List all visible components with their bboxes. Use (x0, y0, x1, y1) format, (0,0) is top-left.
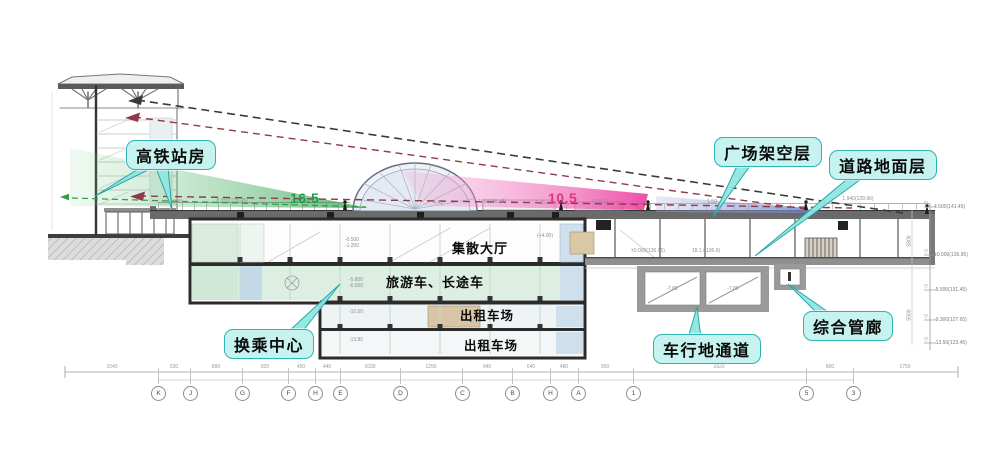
grid-bubble: 5 (799, 386, 814, 401)
grid-bubble: F (281, 386, 296, 401)
dimension-value: 640 (527, 364, 535, 370)
dimension-value: 450 (297, 364, 305, 370)
tiny-annotation: -7.80 (666, 286, 677, 292)
elevation-marker: ▽ (924, 249, 928, 255)
callout-vehicle-underpass: 车行地通道 (653, 334, 761, 364)
tiny-annotation: 4.45 (535, 200, 545, 206)
dimension-value: 890 (212, 364, 220, 370)
grid-tick (633, 368, 634, 384)
annotation-layer: KJGFHEDCBHA15315405308908204504401030125… (0, 0, 995, 468)
tiny-annotation: (+4.00) (537, 233, 553, 239)
grid-bubble: D (393, 386, 408, 401)
tiny-annotation: -7.80 (727, 286, 738, 292)
elevation-marker: ▽ (924, 314, 928, 320)
dimension-value: 820 (261, 364, 269, 370)
grid-bubble: E (333, 386, 348, 401)
grid-bubble: H (308, 386, 323, 401)
elevation-value: 4.500(141.45) (934, 204, 965, 210)
grid-bubble: G (235, 386, 250, 401)
label-concourse-hall: 集散大厅 (452, 238, 508, 257)
tiny-annotation: 4.45 (433, 200, 443, 206)
dimension-value: 1250 (425, 364, 436, 370)
callout-station-building: 高铁站房 (126, 140, 216, 170)
tiny-annotation: -6.500 (349, 283, 363, 289)
vertical-dimension: 5800 (907, 235, 913, 246)
elevation-marker: ▽ (924, 201, 928, 207)
grid-bubble: A (571, 386, 586, 401)
dimension-value: 800 (826, 364, 834, 370)
grid-bubble: K (151, 386, 166, 401)
label-tour-coach-level: 旅游车、长途车 (386, 272, 484, 291)
grid-tick (462, 368, 463, 384)
elevation-value: -9.300(127.65) (934, 317, 967, 323)
grid-tick (806, 368, 807, 384)
vertical-dimension: 5500 (907, 309, 913, 320)
grid-tick (315, 368, 316, 384)
tiny-annotation: 0.45 (173, 199, 183, 205)
grid-bubble: H (543, 386, 558, 401)
grid-tick (288, 368, 289, 384)
dimension-value: 440 (323, 364, 331, 370)
elevation-value: ±0.000(136.95) (934, 252, 968, 258)
label-taxi-level-2: 出租车场 (464, 335, 518, 354)
grid-tick (190, 368, 191, 384)
grid-bubble: B (505, 386, 520, 401)
grid-bubble: J (183, 386, 198, 401)
tiny-annotation: (138.2) (592, 199, 608, 205)
grid-bubble: 1 (626, 386, 641, 401)
grid-tick (400, 368, 401, 384)
dimension-value: 2920 (713, 364, 724, 370)
grid-tick (853, 368, 854, 384)
grid-tick (242, 368, 243, 384)
callout-utility-corridor: 综合管廊 (803, 311, 893, 341)
tiny-annotation: 1.50 (707, 199, 717, 205)
dimension-value: 530 (170, 364, 178, 370)
tiny-annotation: 1.940(139.96) (842, 196, 873, 202)
grid-tick (158, 368, 159, 384)
callout-road-ground-level: 道路地面层 (829, 150, 937, 180)
tiny-annotation: 18.1 /(136.9) (692, 248, 720, 254)
green-sightline-value: 16.5 (290, 190, 319, 206)
dimension-value: 900 (601, 364, 609, 370)
grid-tick (550, 368, 551, 384)
elevation-marker: ▽ (924, 337, 928, 343)
tiny-annotation: 7.92(136.45) (478, 199, 506, 205)
label-taxi-level-1: 出租车场 (460, 305, 514, 324)
elevation-value: -5.500(131.45) (934, 287, 967, 293)
pink-sightline-value: 10.5 (548, 190, 577, 206)
callout-plaza-elevated-level: 广场架空层 (714, 137, 822, 167)
grid-tick (578, 368, 579, 384)
elevation-value: -13.50(123.45) (934, 340, 967, 346)
tiny-annotation: -13.80 (349, 337, 363, 343)
dimension-value: 480 (560, 364, 568, 370)
elevation-marker: ▽ (924, 284, 928, 290)
tiny-annotation: -10.50 (349, 309, 363, 315)
grid-tick (512, 368, 513, 384)
tiny-annotation: 8.950(138.45) (216, 198, 247, 204)
grid-bubble: C (455, 386, 470, 401)
dimension-value: 940 (483, 364, 491, 370)
dimension-value: 1750 (899, 364, 910, 370)
grid-bubble: 3 (846, 386, 861, 401)
tiny-annotation: ±0.000(136.95) (631, 248, 665, 254)
callout-transfer-center: 换乘中心 (224, 329, 314, 359)
grid-tick (340, 368, 341, 384)
section-diagram: 高铁站房 广场架空层 道路地面层 综合管廊 车行地通道 换乘中心 集散大厅 旅游… (0, 0, 995, 468)
tiny-annotation: -1.200 (345, 243, 359, 249)
dimension-value: 1540 (106, 364, 117, 370)
dimension-value: 1030 (364, 364, 375, 370)
